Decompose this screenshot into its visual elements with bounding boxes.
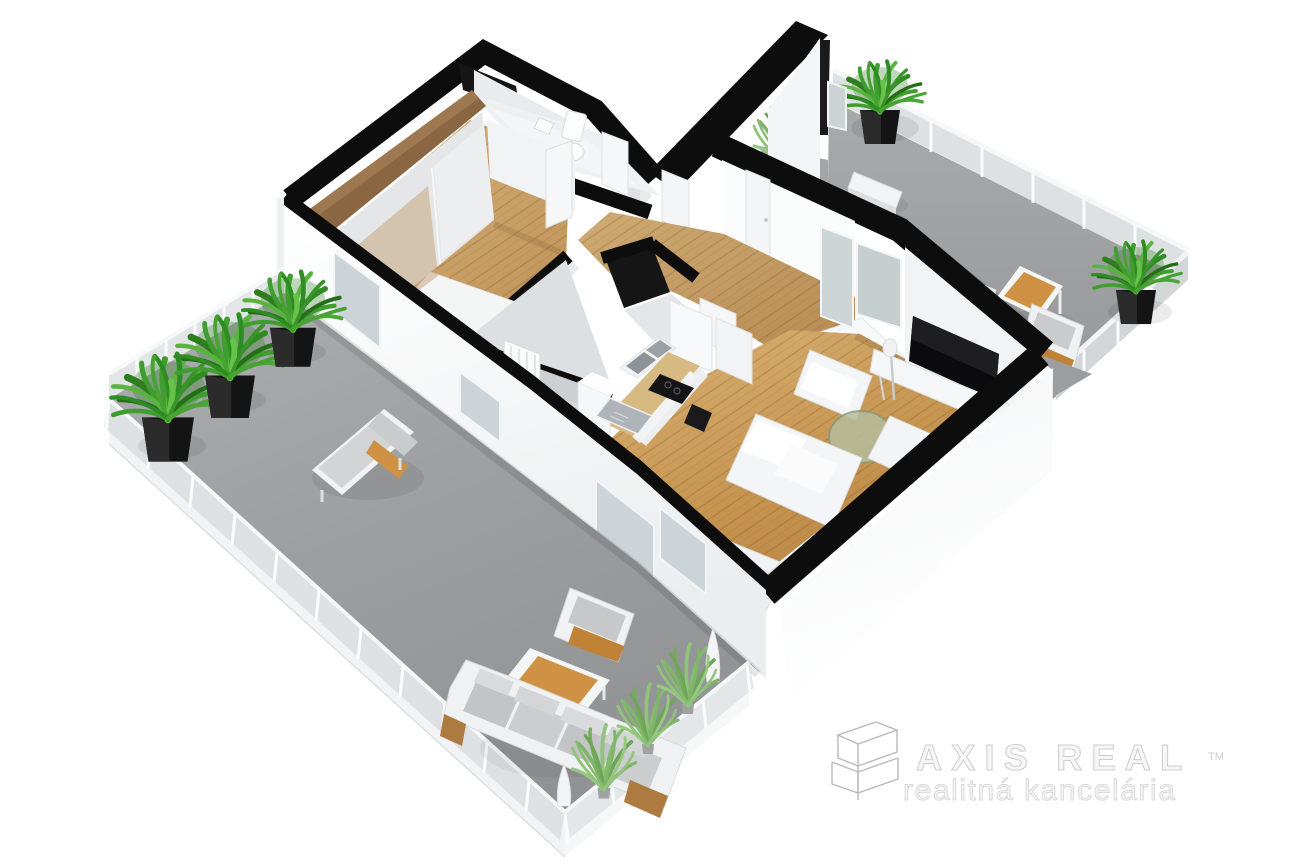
svg-text:AXIS REAL: AXIS REAL xyxy=(916,737,1188,778)
svg-text:TM: TM xyxy=(1208,751,1224,763)
svg-text:realitná kancelária: realitná kancelária xyxy=(903,774,1177,807)
